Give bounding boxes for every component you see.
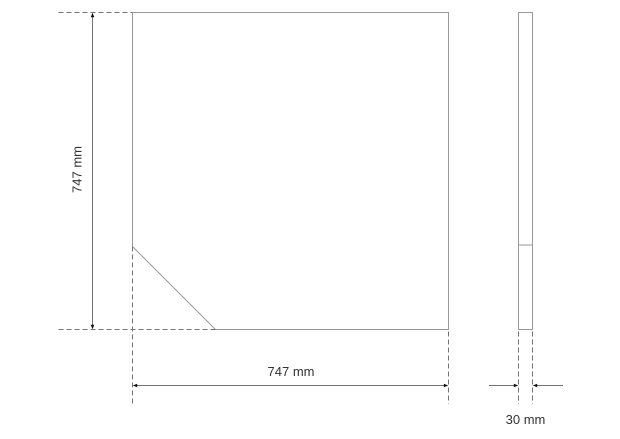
svg-text:30 mm: 30 mm — [506, 412, 546, 427]
svg-text:747 mm: 747 mm — [268, 364, 315, 379]
svg-text:747 mm: 747 mm — [70, 146, 85, 193]
